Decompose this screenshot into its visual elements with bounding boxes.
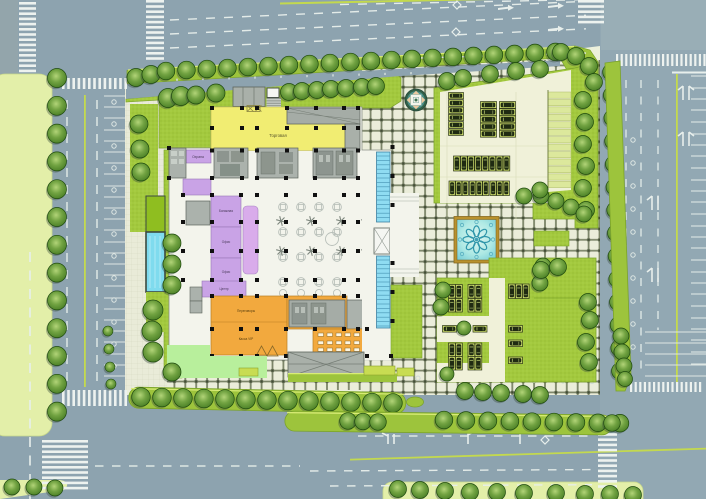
svg-text:Касса VIP: Касса VIP [239,337,254,341]
svg-text:Центр: Центр [219,287,228,291]
svg-text:Охрана: Охрана [192,155,204,159]
svg-text:Офис: Офис [222,240,231,244]
svg-text:Багажная: Багажная [219,209,233,213]
svg-text:Торговая: Торговая [269,133,286,138]
svg-text:Переговоры: Переговоры [237,309,256,313]
svg-text:Офис: Офис [222,270,231,274]
